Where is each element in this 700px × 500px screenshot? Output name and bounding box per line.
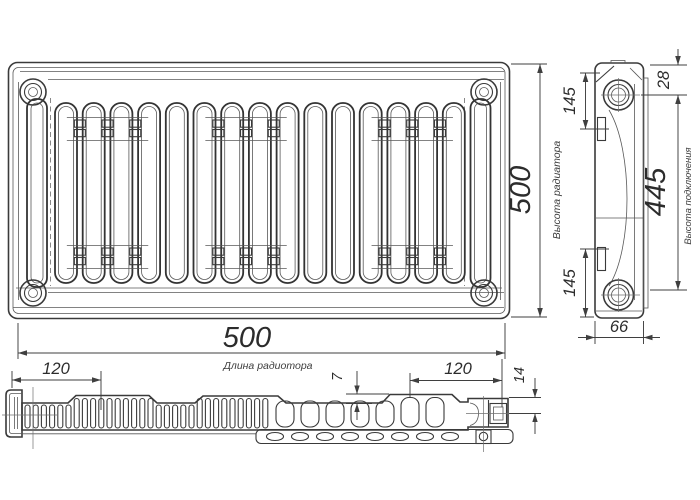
side-145-bottom-value: 145 (561, 268, 579, 296)
fin-slot (140, 399, 145, 429)
front-length-caption: Длина радиотора (223, 360, 313, 372)
water-channel-slot (326, 401, 344, 427)
bridge-connector (268, 258, 279, 265)
fin-slot (189, 405, 194, 428)
fin-slot (263, 399, 268, 429)
fin-slot (132, 399, 137, 429)
rail-oval-slot (417, 433, 434, 441)
fin-slot (214, 399, 219, 429)
front-height-value: 500 (505, 166, 537, 214)
front-length-value: 500 (223, 322, 271, 354)
fin-slot (33, 405, 38, 428)
fin-slot (66, 405, 71, 428)
bracket-tab-bottom (598, 248, 606, 271)
side-28-value: 28 (655, 70, 673, 90)
bridge-connector (407, 248, 418, 255)
bridge-connector (268, 248, 279, 255)
fin-slot (173, 405, 178, 428)
corner-plug-center (480, 88, 489, 97)
bridge-connector (407, 258, 418, 265)
water-channel-slot (276, 401, 294, 427)
fin-slot (156, 405, 161, 428)
fin-slot (181, 405, 186, 428)
fin-slot (58, 405, 63, 428)
bottom-rail-slots (267, 433, 459, 441)
bridge-connector (241, 120, 252, 127)
bridge-connector (130, 120, 141, 127)
radiator-tube-inner (252, 107, 267, 280)
bridge-connector (130, 130, 141, 137)
radiator-tube-inner (446, 107, 461, 280)
bridge-connector (213, 248, 224, 255)
bridge-connector (434, 130, 445, 137)
radiator-tube-inner (308, 107, 323, 280)
panel-bulge-line (609, 110, 627, 286)
radiator-tube-inner (169, 107, 184, 280)
fin-slot (91, 399, 96, 429)
side-145-top-value: 145 (561, 86, 579, 114)
bridge-connector (102, 120, 113, 127)
bridge-connector (434, 120, 445, 127)
bottom-tab-rail (256, 430, 513, 444)
radiator-tube-inner (197, 107, 212, 280)
bridge-connector (379, 130, 390, 137)
rail-oval-slot (317, 433, 334, 441)
bridge-connector (213, 130, 224, 137)
corner-plug-center (480, 289, 489, 298)
bottom-view (2, 387, 513, 452)
drawing-canvas: 500 Высота радиатора 500 Длина радиотора… (0, 0, 700, 500)
side-channel-inner (31, 103, 43, 283)
bottom-7-value: 7 (330, 372, 346, 381)
dimension-labels: 500 Высота радиатора 500 Длина радиотора… (42, 70, 694, 383)
side-connection-caption: Высота подключения (683, 147, 694, 244)
corner-plug-inner (25, 84, 42, 101)
bridge-connector (130, 248, 141, 255)
bridge-connector (434, 248, 445, 255)
dim-bottom-7 (346, 371, 389, 420)
fin-slot (41, 405, 46, 428)
bridge-connector (74, 120, 85, 127)
fin-slot (205, 399, 210, 429)
radiator-tube-inner (363, 107, 378, 280)
radiator-tube-inner (59, 107, 74, 280)
front-view (9, 63, 510, 319)
dim-bottom-14 (509, 378, 541, 434)
fin-slot (74, 399, 79, 429)
corner-plug (20, 280, 46, 306)
side-channel-inner (475, 103, 487, 283)
bridge-connector (241, 130, 252, 137)
bridge-connector (102, 130, 113, 137)
bridge-connector (241, 248, 252, 255)
bridge-connector (268, 130, 279, 137)
front-height-caption: Высота радиатора (551, 141, 563, 240)
bridge-connector (434, 258, 445, 265)
bridge-connector (102, 258, 113, 265)
bridge-connector (130, 258, 141, 265)
front-bridge-connectors (67, 118, 453, 269)
corner-plug-center (29, 289, 38, 298)
bottom-120-right-value: 120 (444, 360, 472, 378)
corner-plug (471, 280, 497, 306)
bridge-connector (407, 130, 418, 137)
bridge-connector (74, 130, 85, 137)
water-channel-slot (401, 398, 419, 428)
front-tube-array (27, 99, 491, 287)
fin-slot (25, 405, 30, 428)
bottom-120-left-value: 120 (42, 360, 70, 378)
corner-plug-center (29, 88, 38, 97)
radiator-tube-inner (391, 107, 406, 280)
corner-plug-inner (476, 84, 493, 101)
bridge-connector (213, 258, 224, 265)
fin-slot (246, 399, 251, 429)
radiator-tube-inner (142, 107, 157, 280)
side-channel (471, 99, 491, 287)
rail-oval-slot (367, 433, 384, 441)
bridge-connector (379, 258, 390, 265)
fin-slot (255, 399, 260, 429)
side-445-value: 445 (640, 167, 672, 216)
radiator-tube-inner (86, 107, 101, 280)
bridge-connector (241, 258, 252, 265)
bottom-left-end-block (6, 390, 22, 437)
fin-slot (82, 399, 87, 429)
fin-slot (123, 399, 128, 429)
water-channel-slot (301, 401, 319, 427)
side-channel (27, 99, 47, 287)
bridge-connector (379, 248, 390, 255)
bridge-connector (102, 248, 113, 255)
water-channel-slot (376, 401, 394, 427)
rail-oval-slot (442, 433, 459, 441)
corner-plug (471, 79, 497, 105)
radiator-dimensional-drawing: 500 Высота радиатора 500 Длина радиотора… (0, 0, 700, 500)
rail-oval-slot (267, 433, 284, 441)
rail-oval-slot (292, 433, 309, 441)
bridge-connector (74, 258, 85, 265)
fin-slot (107, 399, 112, 429)
corner-plugs (20, 79, 497, 306)
bridge-connector (268, 120, 279, 127)
radiator-tube-inner (419, 107, 434, 280)
rail-oval-slot (342, 433, 359, 441)
bridge-connector (407, 120, 418, 127)
water-channel-slot (426, 398, 444, 428)
fin-slot (115, 399, 120, 429)
fin-slot (238, 399, 243, 429)
radiator-tube-inner (336, 107, 351, 280)
fin-slot (50, 405, 55, 428)
radiator-tube-inner (280, 107, 295, 280)
bottom-14-value: 14 (512, 367, 528, 383)
rail-oval-slot (392, 433, 409, 441)
fin-slot (222, 399, 227, 429)
bridge-connector (379, 120, 390, 127)
corner-plug (20, 79, 46, 105)
bottom-fin-slots (25, 398, 444, 429)
fin-slot (148, 399, 153, 429)
fin-slot (197, 399, 202, 429)
side-66-value: 66 (610, 318, 629, 336)
radiator-tube-inner (114, 107, 129, 280)
bridge-connector (74, 248, 85, 255)
bridge-connector (213, 120, 224, 127)
water-channel-slot (351, 401, 369, 427)
fin-slot (230, 399, 235, 429)
radiator-tube-inner (225, 107, 240, 280)
fin-slot (164, 405, 169, 428)
